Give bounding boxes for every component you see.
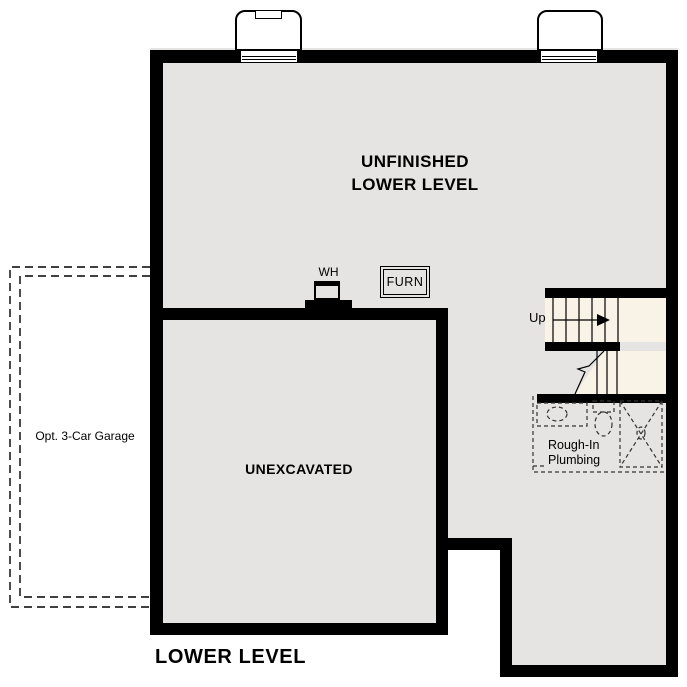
wall-step-vertical (500, 538, 512, 677)
page-title: LOWER LEVEL (155, 646, 306, 669)
wall-unexcavated-top (150, 308, 448, 320)
floor-right-lower (500, 550, 678, 677)
window-well-left-notch (255, 10, 282, 19)
wall-right (666, 50, 678, 677)
window-well-right (537, 10, 603, 51)
wall-stairwell-bottom (537, 394, 666, 403)
unexcavated-label: UNEXCAVATED (224, 461, 374, 477)
rough-in-plumbing-label-line2: Plumbing (548, 453, 600, 468)
furnace: FURN (380, 266, 430, 298)
furnace-label: FURN (383, 269, 427, 295)
wall-bottom-right (500, 665, 678, 677)
stairs-up-label: Up (529, 310, 546, 325)
wall-top (150, 50, 678, 63)
water-heater (314, 281, 340, 300)
main-room-label-line2: LOWER LEVEL (330, 173, 500, 196)
water-heater-label: WH (305, 265, 352, 279)
rough-in-plumbing-label: Rough-In Plumbing (548, 438, 600, 468)
wall-left (150, 50, 163, 635)
floor-plan: FURN (0, 0, 687, 687)
wall-stairwell-top (545, 288, 666, 298)
wall-unexcavated-east (436, 308, 448, 635)
wall-stairwell-mid (545, 342, 620, 351)
wall-unexcavated-bottom (150, 623, 448, 635)
basement-window-right (540, 50, 598, 63)
stairwell-lower-run (545, 351, 666, 394)
stairwell-upper-run (545, 298, 666, 342)
rough-in-plumbing-label-line1: Rough-In (548, 438, 600, 453)
basement-window-left (240, 50, 298, 63)
main-room-label: UNFINISHED LOWER LEVEL (330, 150, 500, 196)
water-heater-pedestal (305, 300, 352, 309)
garage-label: Opt. 3-Car Garage (15, 429, 155, 443)
main-room-label-line1: UNFINISHED (330, 150, 500, 173)
